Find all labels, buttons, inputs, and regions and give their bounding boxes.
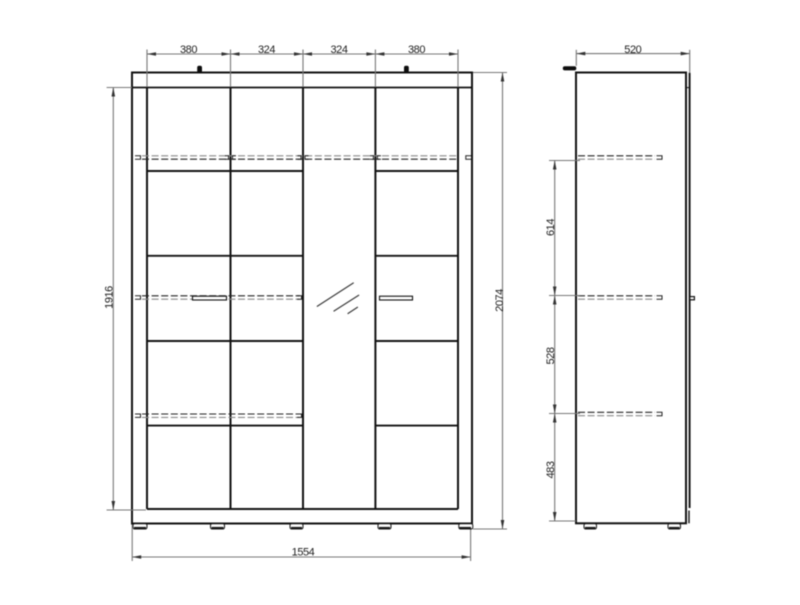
svg-text:1916: 1916 (104, 286, 116, 309)
svg-text:324: 324 (258, 44, 275, 56)
svg-text:380: 380 (180, 44, 197, 56)
svg-text:2074: 2074 (494, 289, 506, 312)
svg-text:483: 483 (545, 461, 557, 478)
svg-text:324: 324 (330, 44, 347, 56)
svg-text:380: 380 (408, 44, 425, 56)
svg-text:1554: 1554 (292, 547, 315, 559)
svg-text:614: 614 (545, 219, 557, 236)
svg-text:520: 520 (624, 44, 641, 56)
svg-text:528: 528 (545, 347, 557, 364)
